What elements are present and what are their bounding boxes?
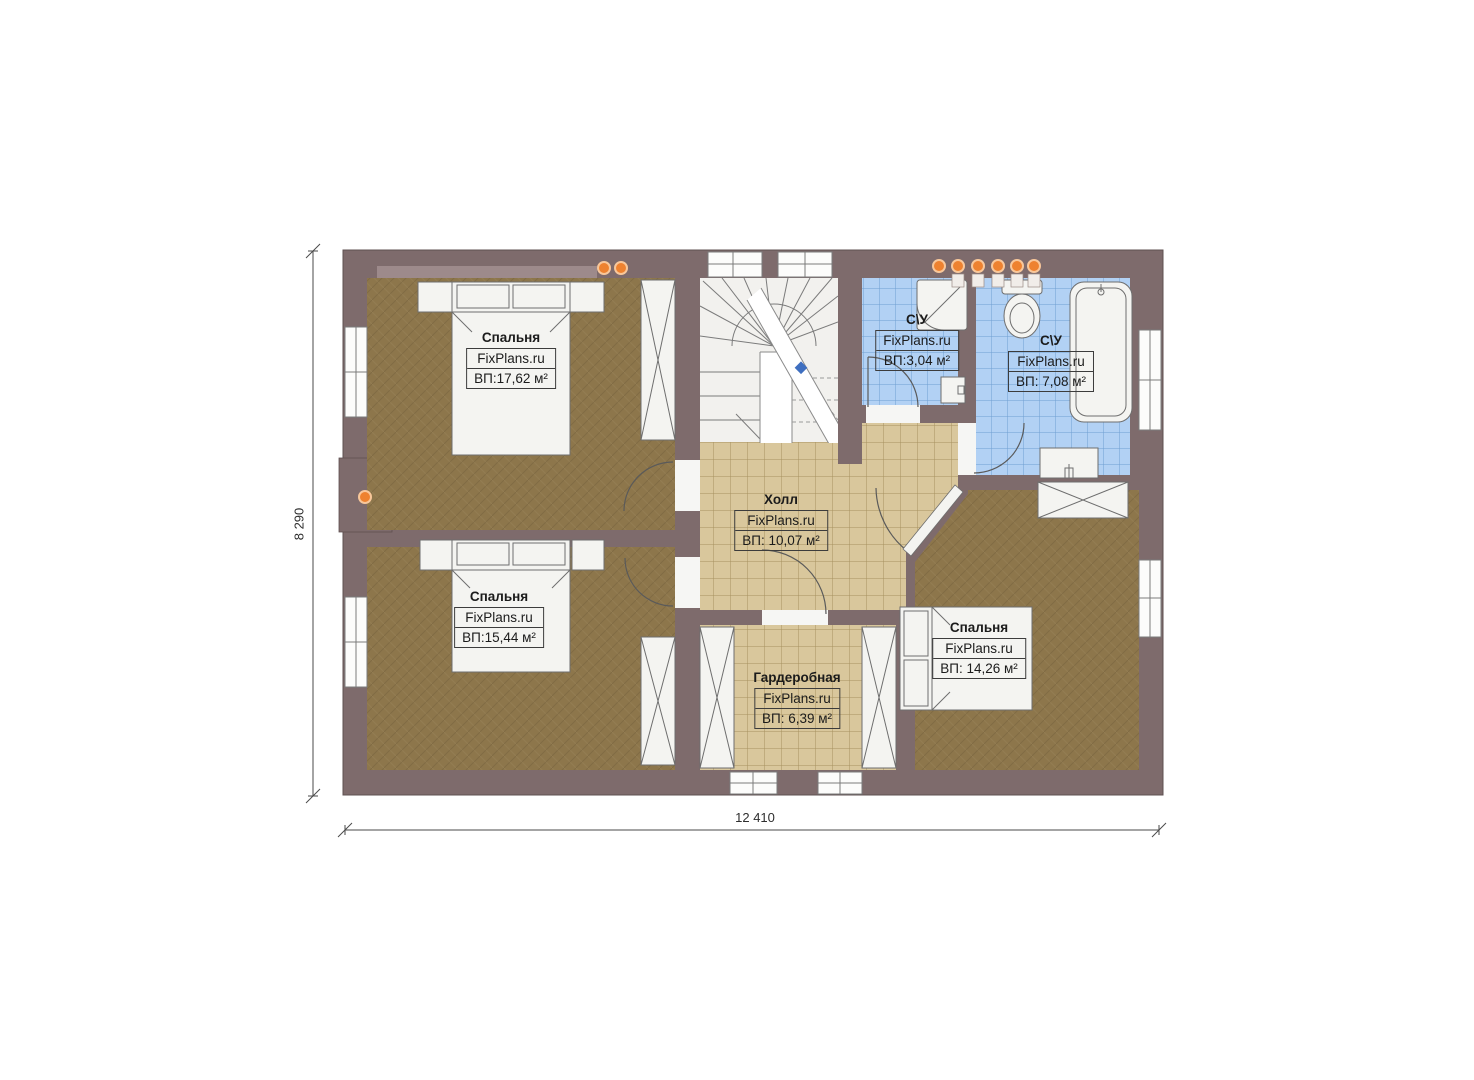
room-area: ВП:15,44 м²: [455, 628, 543, 647]
room-label-bedroom-3: Спальня FixPlans.ru ВП: 14,26 м²: [932, 620, 1026, 679]
room-name: Гардеробная: [753, 670, 840, 685]
door-opening-wardrobe: [762, 610, 828, 625]
watermark: FixPlans.ru: [467, 349, 555, 369]
watermark: FixPlans.ru: [1009, 352, 1093, 372]
room-info-box: FixPlans.ru ВП:17,62 м²: [466, 348, 556, 389]
window: [1139, 330, 1161, 430]
room-name: Спальня: [932, 620, 1026, 635]
sink-small: [941, 377, 965, 403]
room-label-bathroom-small: С\У FixPlans.ru ВП:3,04 м²: [875, 312, 959, 371]
nightstand: [572, 540, 604, 570]
room-area: ВП: 10,07 м²: [735, 531, 827, 550]
watermark: FixPlans.ru: [755, 689, 839, 709]
room-label-hall: Холл FixPlans.ru ВП: 10,07 м²: [734, 492, 828, 551]
room-info-box: FixPlans.ru ВП: 10,07 м²: [734, 510, 828, 551]
window: [778, 252, 832, 277]
room-label-wardrobe: Гардеробная FixPlans.ru ВП: 6,39 м²: [753, 670, 840, 729]
room-name: С\У: [1008, 333, 1094, 348]
room-info-box: FixPlans.ru ВП:15,44 м²: [454, 607, 544, 648]
closet: [862, 627, 896, 768]
chimney-dot: [359, 491, 371, 503]
dimension-line-vertical: [306, 244, 320, 803]
room-name: С\У: [875, 312, 959, 327]
closet: [1038, 482, 1128, 518]
room-label-bedroom-1: Спальня FixPlans.ru ВП:17,62 м²: [466, 330, 556, 389]
room-area: ВП:17,62 м²: [467, 369, 555, 388]
nightstand: [570, 282, 604, 312]
room-area: ВП:3,04 м²: [876, 351, 958, 370]
window: [730, 772, 777, 794]
room-info-box: FixPlans.ru ВП: 7,08 м²: [1008, 351, 1094, 392]
watermark: FixPlans.ru: [933, 639, 1025, 659]
room-name: Спальня: [454, 589, 544, 604]
room-info-box: FixPlans.ru ВП: 14,26 м²: [932, 638, 1026, 679]
dimension-width: 12 410: [735, 810, 775, 825]
floor-plan-page: Спальня FixPlans.ru ВП:17,62 м² Спальня …: [0, 0, 1474, 1080]
window: [818, 772, 862, 794]
window: [345, 327, 367, 417]
nightstand: [420, 540, 452, 570]
closet: [641, 637, 675, 765]
door-opening-bathroom-small: [866, 405, 920, 423]
room-label-bedroom-2: Спальня FixPlans.ru ВП:15,44 м²: [454, 589, 544, 648]
watermark: FixPlans.ru: [876, 331, 958, 351]
window: [1139, 560, 1161, 637]
toilet: [1002, 280, 1042, 338]
closet: [641, 280, 675, 440]
room-info-box: FixPlans.ru ВП:3,04 м²: [875, 330, 959, 371]
closet: [700, 627, 734, 768]
room-name: Спальня: [466, 330, 556, 345]
room-area: ВП: 14,26 м²: [933, 659, 1025, 678]
dimension-line-horizontal: [338, 823, 1166, 837]
room-area: ВП: 6,39 м²: [755, 709, 839, 728]
window: [708, 252, 762, 277]
nightstand: [418, 282, 452, 312]
door-opening-bedroom-1: [675, 460, 700, 511]
room-label-bathroom-large: С\У FixPlans.ru ВП: 7,08 м²: [1008, 333, 1094, 392]
window: [345, 597, 367, 687]
room-area: ВП: 7,08 м²: [1009, 372, 1093, 391]
door-opening-bedroom-2: [675, 557, 700, 608]
watermark: FixPlans.ru: [735, 511, 827, 531]
room-name: Холл: [734, 492, 828, 507]
door-opening-bathroom-large: [958, 423, 976, 475]
room-info-box: FixPlans.ru ВП: 6,39 м²: [754, 688, 840, 729]
dimension-height: 8 290: [292, 508, 307, 541]
watermark: FixPlans.ru: [455, 608, 543, 628]
sink-large: [1040, 448, 1098, 478]
